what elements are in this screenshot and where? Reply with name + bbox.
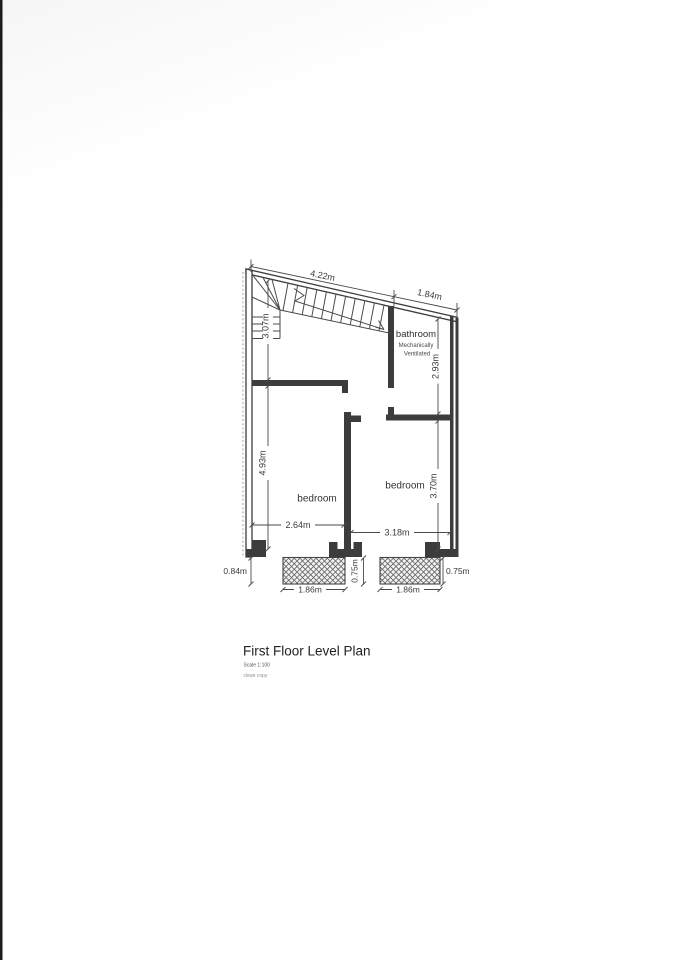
scanned-plan-page: 4.22m 1.84m 3.07m 4.93m 2.93m 3.70m 2.64… bbox=[0, 0, 696, 960]
bathroom-door-jamb bbox=[388, 407, 394, 415]
plan-scale-note: Scale 1:100 bbox=[244, 663, 271, 669]
bedroom-right-label: bedroom bbox=[385, 481, 424, 492]
bottom-wall-middle-segment bbox=[329, 549, 362, 557]
bedroom-right-top-wall bbox=[386, 415, 450, 421]
bathroom-note-line1: Mechanically bbox=[399, 343, 434, 349]
dim-label-balcony-mid-projection: 0.75m bbox=[350, 559, 360, 583]
right-wall-inner-leaf bbox=[450, 316, 454, 557]
dim-label-balcony-right-width: 1.86m bbox=[396, 585, 420, 595]
dim-label-balcony-left-width: 1.86m bbox=[298, 585, 322, 595]
dim-label-stair-depth: 3.07m bbox=[261, 313, 271, 338]
dim-label-bedroom-left-width: 2.64m bbox=[285, 520, 310, 530]
door-jamb bbox=[252, 540, 266, 549]
bathroom-label: bathroom bbox=[396, 329, 436, 340]
bottom-wall-left-segment bbox=[246, 549, 266, 557]
balcony-right bbox=[380, 558, 440, 585]
stair-string-line bbox=[280, 310, 392, 334]
scan-edge-strip bbox=[0, 0, 3, 960]
hall-wall bbox=[252, 380, 348, 386]
door-jamb bbox=[354, 542, 363, 549]
dim-label-bedroom-right-width: 3.18m bbox=[384, 528, 409, 538]
hall-wall-end-cap bbox=[342, 386, 348, 393]
bathroom-note-line2: Ventilated bbox=[404, 352, 430, 358]
dim-label-top-left-width: 4.22m bbox=[309, 268, 336, 283]
floor-plan-drawing: 4.22m 1.84m 3.07m 4.93m 2.93m 3.70m 2.64… bbox=[0, 0, 696, 960]
dim-label-bedroom-left-depth: 4.93m bbox=[258, 450, 268, 475]
right-wall-outer-leaf bbox=[456, 317, 459, 557]
central-partition-wall bbox=[344, 412, 351, 549]
left-wall bbox=[246, 269, 252, 557]
plan-title: First Floor Level Plan bbox=[243, 644, 371, 659]
dim-label-balcony-right-projection: 0.75m bbox=[446, 566, 470, 576]
central-wall-door-stub bbox=[351, 416, 361, 423]
balcony-left bbox=[283, 558, 345, 585]
title-block: First Floor Level Plan Scale 1:100 clean… bbox=[243, 644, 371, 680]
dim-label-bathroom-depth: 2.93m bbox=[431, 354, 441, 379]
dim-label-bedroom-right-depth: 3.70m bbox=[429, 473, 439, 498]
balconies bbox=[283, 558, 440, 585]
dim-label-top-right-width: 1.84m bbox=[416, 287, 443, 302]
bathroom-left-wall bbox=[388, 306, 394, 388]
door-jamb bbox=[329, 542, 338, 549]
bottom-wall-right-segment bbox=[425, 549, 459, 557]
bedroom-left-label: bedroom bbox=[297, 494, 336, 505]
plan-copy-note: clean copy bbox=[244, 673, 268, 679]
dim-label-balcony-left-projection: 0.84m bbox=[223, 566, 247, 576]
